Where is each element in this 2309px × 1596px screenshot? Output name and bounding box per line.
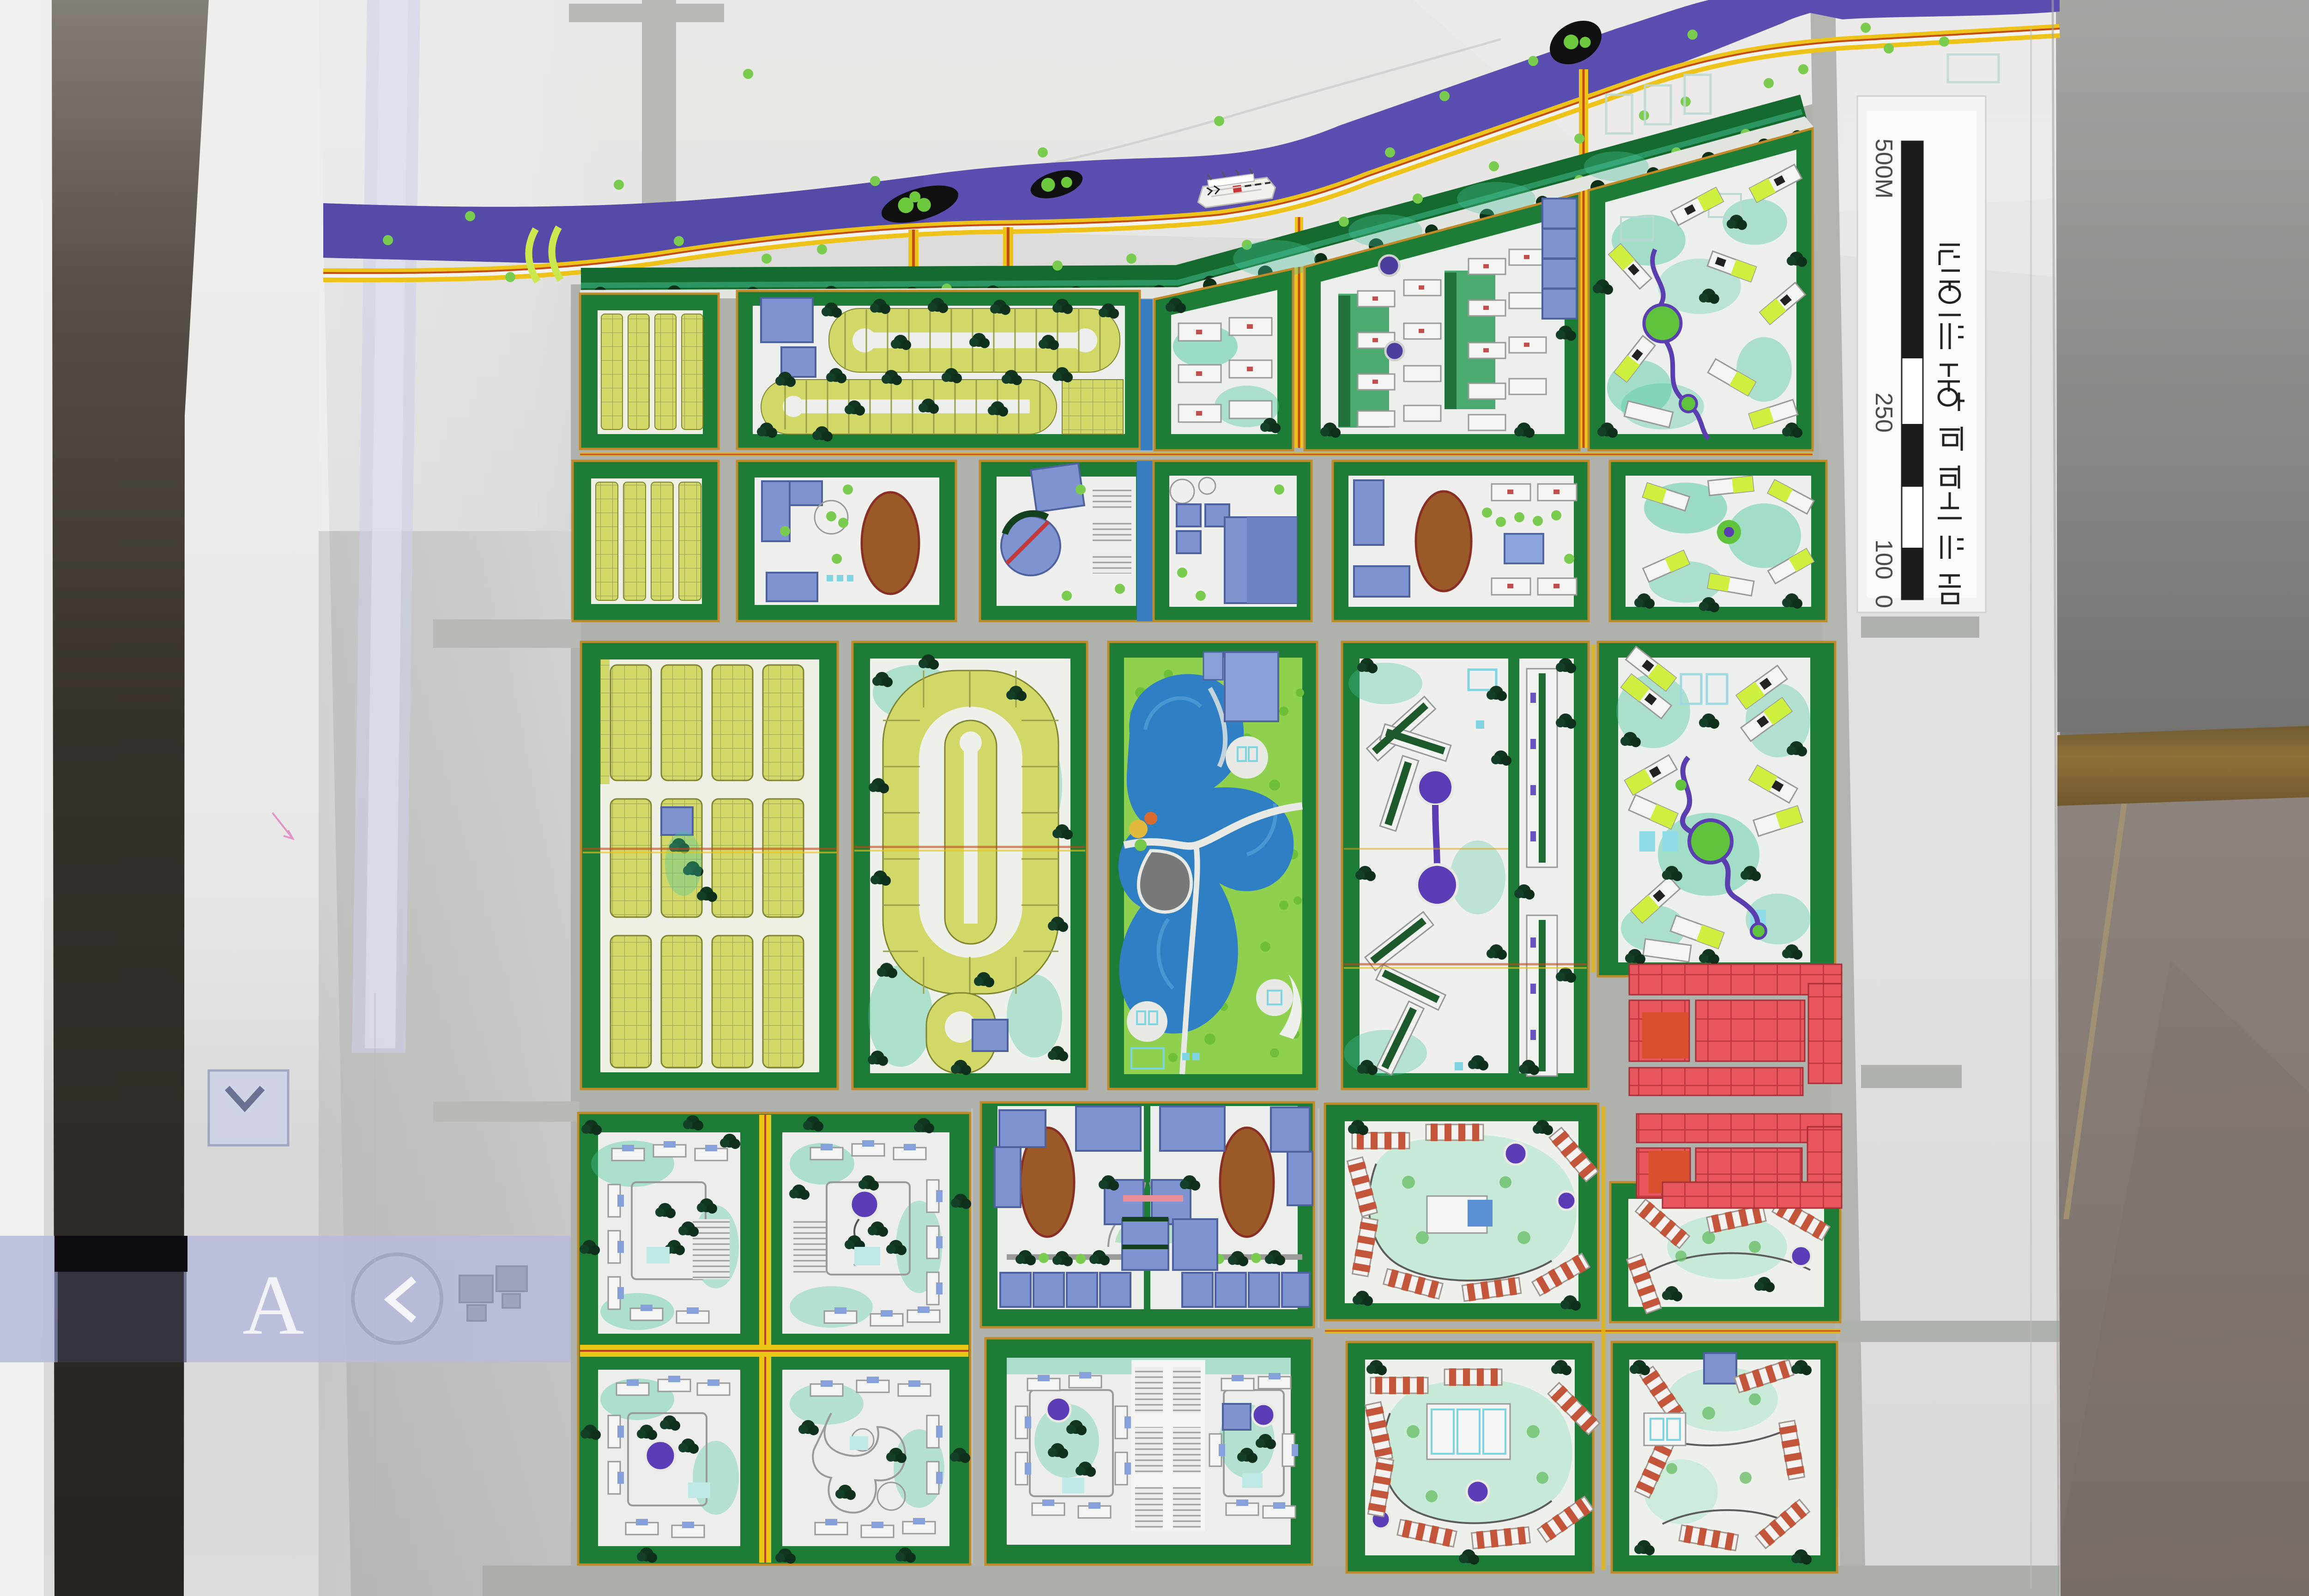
svg-text:A: A: [242, 1258, 304, 1353]
svg-text:250: 250: [1870, 393, 1897, 433]
svg-text:0: 0: [1870, 595, 1897, 608]
svg-text:500M: 500M: [1870, 139, 1897, 199]
svg-text:100: 100: [1870, 539, 1897, 580]
